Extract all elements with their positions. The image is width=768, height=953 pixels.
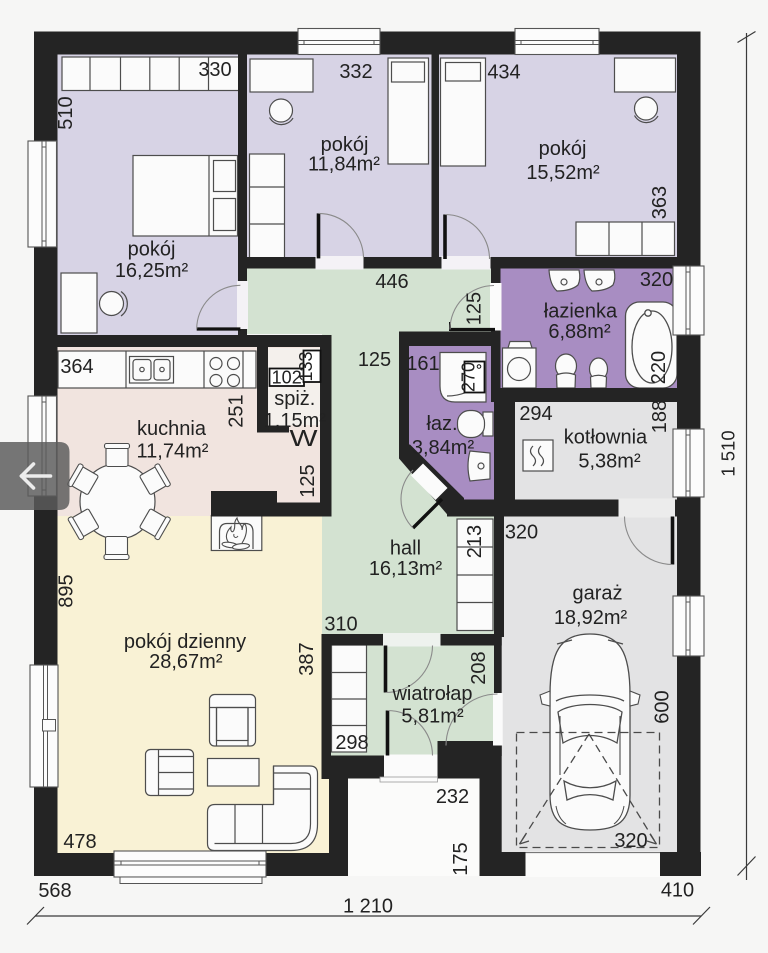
svg-text:kotłownia: kotłownia: [564, 427, 648, 449]
svg-text:364: 364: [60, 356, 93, 378]
svg-text:213: 213: [464, 525, 486, 558]
svg-text:478: 478: [63, 831, 96, 853]
svg-text:410: 410: [661, 880, 694, 902]
svg-text:320: 320: [640, 269, 673, 291]
svg-text:pokój dzienny: pokój dzienny: [124, 631, 246, 653]
svg-text:895: 895: [56, 574, 78, 607]
svg-text:5,38m²: 5,38m²: [578, 451, 641, 473]
svg-text:363: 363: [649, 186, 671, 219]
svg-text:5,81m²: 5,81m²: [401, 706, 464, 728]
svg-text:125: 125: [464, 292, 486, 325]
svg-text:510: 510: [55, 96, 77, 129]
svg-text:hall: hall: [390, 538, 421, 560]
svg-text:600: 600: [652, 690, 674, 723]
svg-text:18,92m²: 18,92m²: [554, 607, 628, 629]
svg-text:220: 220: [648, 351, 670, 384]
svg-text:11,74m²: 11,74m²: [137, 441, 209, 463]
svg-text:łazienka: łazienka: [544, 301, 618, 323]
svg-text:320: 320: [505, 522, 538, 544]
svg-text:161: 161: [406, 353, 439, 375]
svg-text:434: 434: [487, 62, 520, 84]
svg-text:16,25m²: 16,25m²: [115, 260, 189, 282]
svg-text:387: 387: [296, 642, 318, 675]
svg-text:16,13m²: 16,13m²: [369, 558, 443, 580]
svg-text:1 210: 1 210: [343, 896, 393, 918]
svg-text:208: 208: [468, 651, 490, 684]
svg-text:446: 446: [375, 271, 408, 293]
svg-text:568: 568: [38, 880, 71, 902]
svg-text:125: 125: [297, 464, 319, 497]
svg-text:320: 320: [614, 830, 647, 852]
svg-text:232: 232: [436, 786, 469, 808]
svg-text:188: 188: [649, 400, 671, 433]
svg-text:6,88m²: 6,88m²: [548, 321, 611, 343]
svg-text:garaż: garaż: [572, 583, 622, 605]
svg-text:kuchnia: kuchnia: [137, 418, 207, 440]
svg-text:11,84m²: 11,84m²: [308, 154, 380, 176]
svg-text:270: 270: [459, 362, 479, 392]
svg-text:3,84m²: 3,84m²: [412, 437, 475, 459]
svg-text:pokój: pokój: [539, 138, 587, 160]
svg-text:125: 125: [358, 349, 391, 371]
svg-text:łaz.: łaz.: [426, 413, 457, 435]
svg-text:1,15m²: 1,15m²: [264, 410, 327, 432]
svg-text:15,52m²: 15,52m²: [526, 162, 600, 184]
svg-text:332: 332: [339, 61, 372, 83]
svg-text:133: 133: [296, 351, 316, 381]
svg-text:251: 251: [226, 394, 248, 427]
svg-text:294: 294: [519, 403, 552, 425]
svg-text:pokój: pokój: [128, 239, 176, 261]
svg-text:175: 175: [450, 842, 472, 875]
svg-text:1 510: 1 510: [718, 430, 739, 476]
svg-text:28,67m²: 28,67m²: [149, 651, 223, 673]
svg-text:spiż.: spiż.: [274, 388, 315, 410]
svg-text:wiatrołap: wiatrołap: [391, 683, 472, 705]
svg-text:298: 298: [335, 732, 368, 754]
svg-text:310: 310: [324, 614, 357, 636]
svg-text:330: 330: [198, 59, 231, 81]
